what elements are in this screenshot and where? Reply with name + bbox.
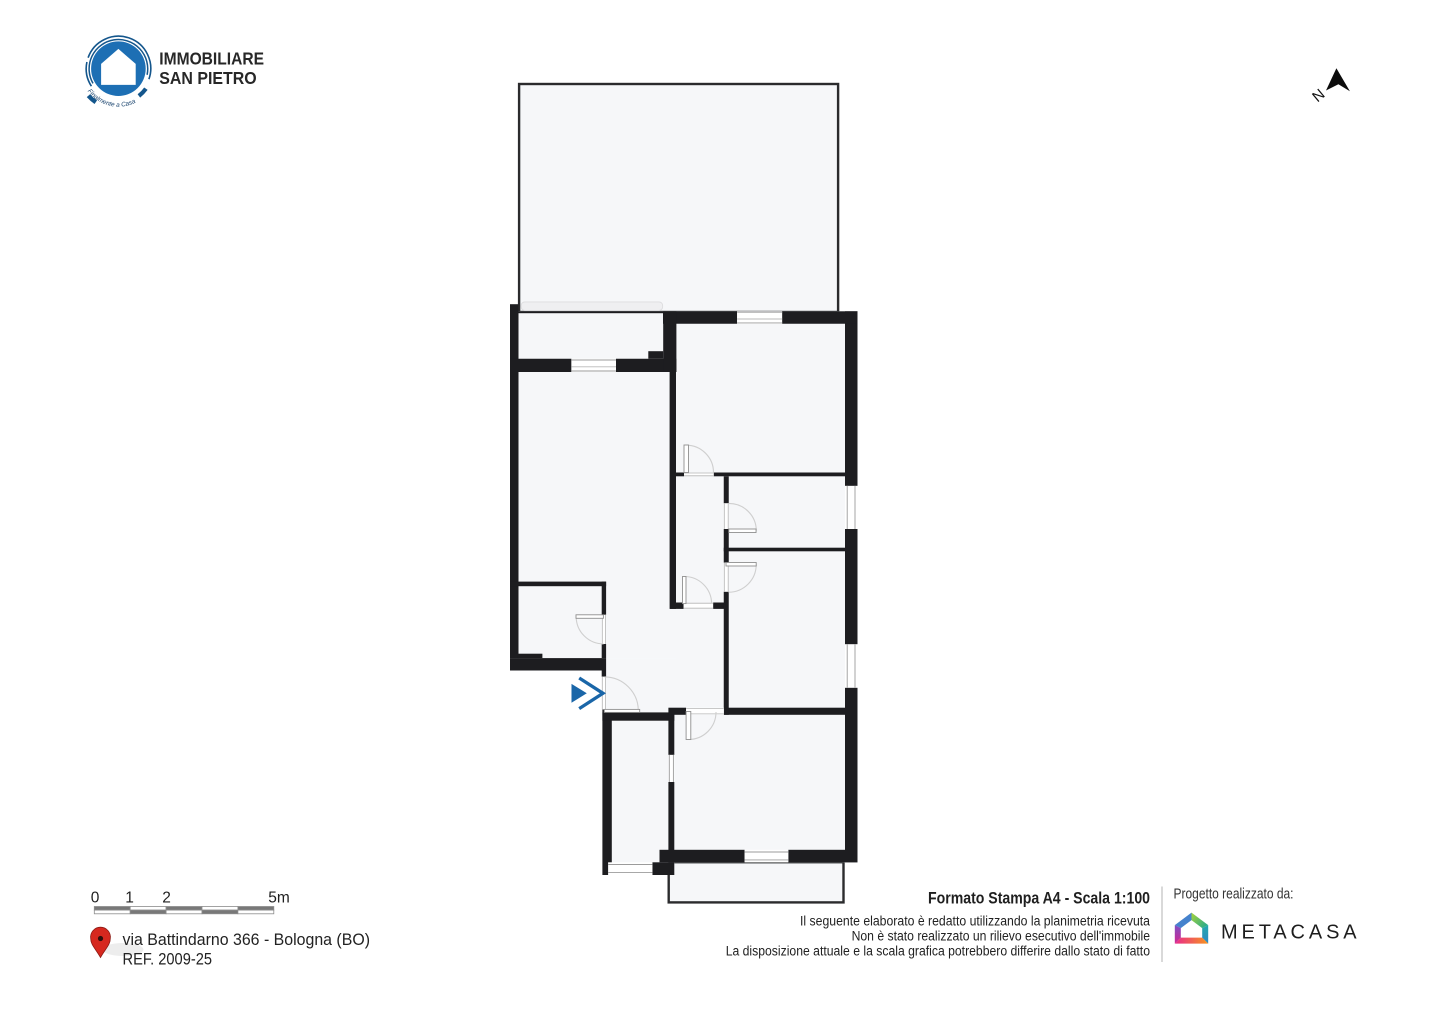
svg-text:La disposizione attuale e la s: La disposizione attuale e la scala grafi… bbox=[726, 944, 1150, 959]
svg-text:Progetto realizzato da:: Progetto realizzato da: bbox=[1174, 887, 1294, 903]
svg-text:0: 0 bbox=[91, 890, 100, 907]
svg-text:IMMOBILIARE: IMMOBILIARE bbox=[159, 48, 264, 68]
svg-text:SAN PIETRO: SAN PIETRO bbox=[159, 68, 257, 88]
svg-text:Il seguente elaborato è redatt: Il seguente elaborato è redatto utilizza… bbox=[800, 914, 1151, 929]
svg-text:METACASA: METACASA bbox=[1221, 921, 1361, 944]
svg-text:1: 1 bbox=[125, 890, 134, 907]
svg-text:2: 2 bbox=[162, 890, 171, 907]
svg-text:via Battindarno 366 - Bologna: via Battindarno 366 - Bologna (BO) bbox=[123, 931, 371, 949]
svg-text:Non è stato realizzato un rili: Non è stato realizzato un rilievo esecut… bbox=[852, 929, 1150, 944]
svg-text:Formato Stampa A4 - Scala 1:10: Formato Stampa A4 - Scala 1:100 bbox=[928, 890, 1150, 908]
svg-text:5m: 5m bbox=[268, 890, 290, 907]
svg-text:REF. 2009-25: REF. 2009-25 bbox=[123, 951, 213, 969]
